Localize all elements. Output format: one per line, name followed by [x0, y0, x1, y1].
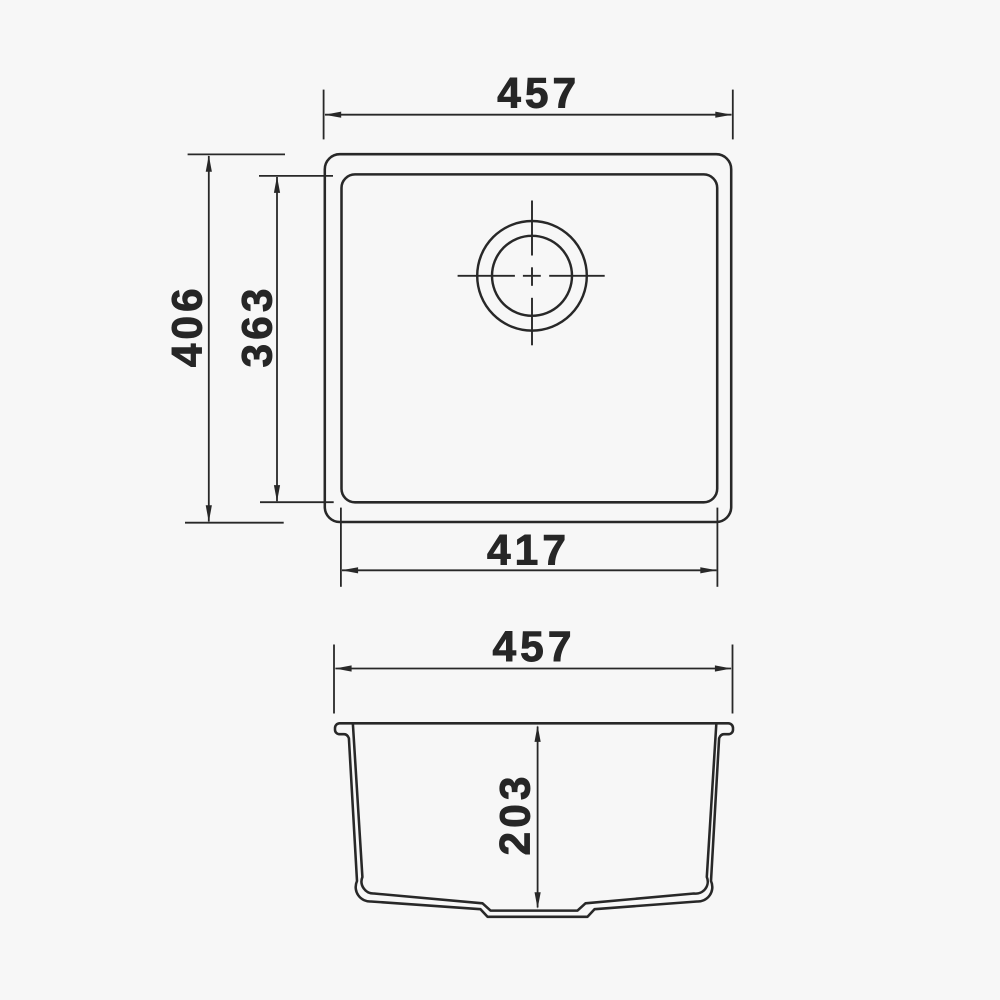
svg-text:417: 417	[487, 527, 566, 574]
svg-text:363: 363	[234, 289, 281, 368]
svg-text:457: 457	[497, 70, 576, 117]
svg-text:203: 203	[492, 777, 539, 856]
svg-text:406: 406	[165, 288, 212, 367]
svg-text:457: 457	[493, 624, 572, 671]
